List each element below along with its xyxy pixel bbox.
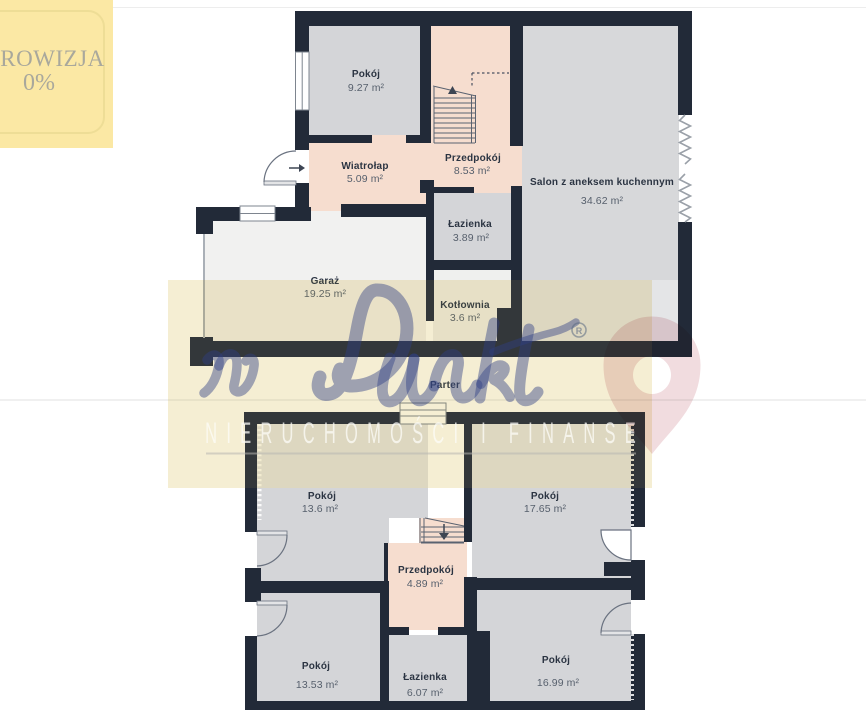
svg-text:5.09 m²: 5.09 m²	[347, 173, 384, 185]
svg-text:Łazienka: Łazienka	[403, 672, 447, 683]
svg-text:Pokój: Pokój	[352, 69, 380, 80]
svg-text:Salon z aneksem kuchennym: Salon z aneksem kuchennym	[530, 177, 674, 188]
svg-text:0%: 0%	[23, 70, 55, 96]
svg-text:13.53 m²: 13.53 m²	[296, 679, 339, 691]
svg-text:8.53 m²: 8.53 m²	[454, 165, 491, 177]
svg-text:4.89 m²: 4.89 m²	[407, 578, 444, 590]
svg-text:Łazienka: Łazienka	[448, 219, 492, 230]
svg-text:Przedpokój: Przedpokój	[445, 153, 501, 164]
svg-text:6.07 m²: 6.07 m²	[407, 687, 444, 699]
svg-text:Pokój: Pokój	[302, 661, 330, 672]
svg-text:9.27 m²: 9.27 m²	[348, 82, 385, 94]
svg-text:17.65 m²: 17.65 m²	[524, 503, 567, 515]
svg-text:13.6 m²: 13.6 m²	[302, 503, 339, 515]
svg-text:34.62 m²: 34.62 m²	[581, 195, 624, 207]
svg-text:Przedpokój: Przedpokój	[398, 565, 454, 576]
svg-text:PROWIZJA: PROWIZJA	[0, 46, 105, 71]
svg-text:R: R	[576, 326, 583, 336]
svg-text:Pokój: Pokój	[542, 655, 570, 666]
svg-text:16.99 m²: 16.99 m²	[537, 677, 580, 689]
svg-text:Wiatrołap: Wiatrołap	[341, 161, 388, 172]
svg-text:Pokój: Pokój	[531, 491, 559, 502]
svg-text:3.89 m²: 3.89 m²	[453, 232, 490, 244]
svg-text:NIERUCHOMOŚCI I FINANSE: NIERUCHOMOŚCI I FINANSE	[205, 416, 645, 451]
svg-text:Pokój: Pokój	[308, 491, 336, 502]
